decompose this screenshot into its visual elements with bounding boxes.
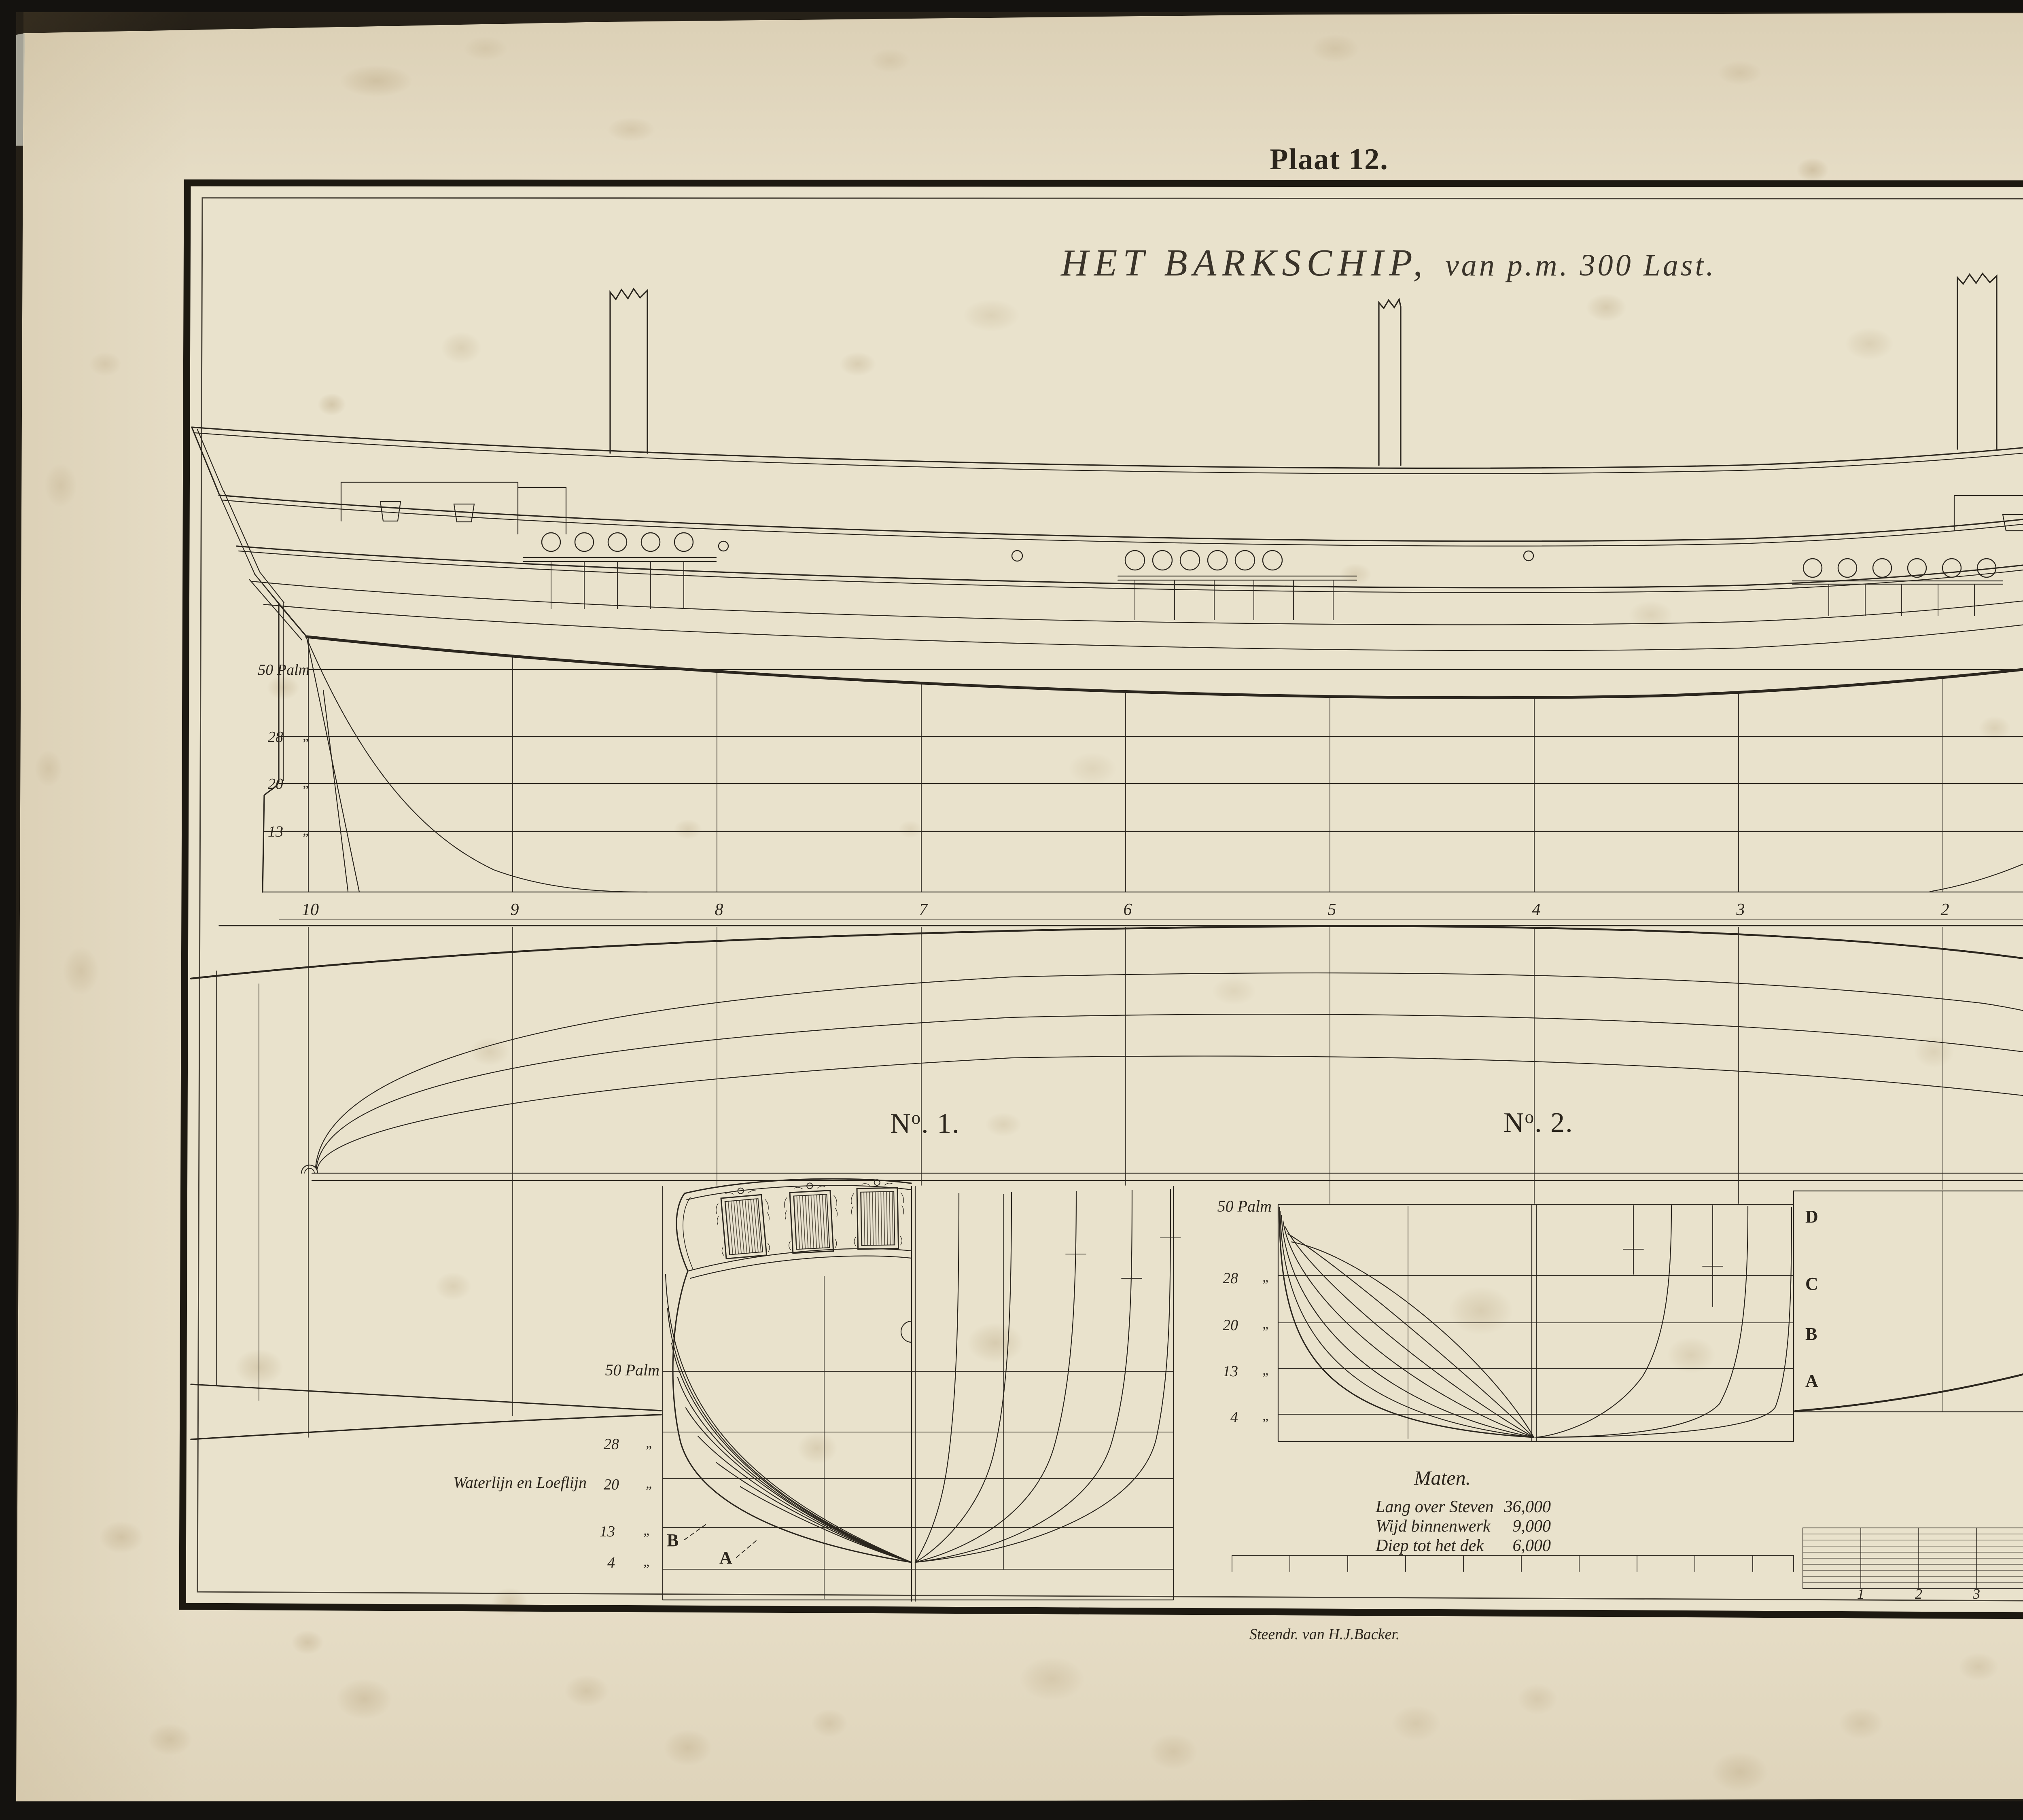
svg-text:Lang over Steven: Lang over Steven: [1375, 1498, 1494, 1516]
svg-text:„: „: [1262, 1409, 1270, 1424]
svg-text:4: 4: [1532, 900, 1541, 919]
svg-text:10: 10: [302, 900, 319, 919]
svg-text:A: A: [1805, 1371, 1818, 1391]
svg-text:van p.m. 300 Last.: van p.m. 300 Last.: [1445, 248, 1716, 282]
svg-text:28: 28: [604, 1436, 619, 1453]
svg-text:„: „: [1262, 1317, 1270, 1332]
svg-text:20: 20: [604, 1476, 619, 1493]
svg-text:50 Palm: 50 Palm: [258, 661, 310, 678]
svg-text:Steendr. van H.J.Backer.: Steendr. van H.J.Backer.: [1249, 1626, 1400, 1643]
svg-text:C: C: [1805, 1274, 1818, 1294]
svg-text:50 Palm: 50 Palm: [1217, 1197, 1272, 1215]
svg-text:No. 2.: No. 2.: [1503, 1107, 1573, 1138]
svg-text:„: „: [646, 1436, 653, 1451]
svg-text:13: 13: [268, 823, 283, 840]
svg-text:2: 2: [1915, 1586, 1922, 1602]
svg-text:D: D: [1805, 1207, 1818, 1227]
svg-text:„: „: [303, 823, 310, 838]
svg-text:Wijd binnenwerk: Wijd binnenwerk: [1376, 1517, 1491, 1536]
svg-text:A: A: [719, 1548, 732, 1568]
svg-text:„: „: [303, 775, 310, 790]
svg-text:„: „: [643, 1523, 651, 1538]
svg-text:Diep tot het dek: Diep tot het dek: [1375, 1536, 1484, 1555]
svg-text:50 Palm: 50 Palm: [605, 1361, 659, 1379]
svg-text:„: „: [646, 1476, 653, 1491]
svg-text:Waterlijn en Loeflijn: Waterlijn en Loeflijn: [453, 1473, 587, 1492]
svg-text:3: 3: [1736, 900, 1745, 919]
svg-text:28: 28: [268, 729, 283, 746]
svg-text:20: 20: [1223, 1317, 1238, 1334]
svg-text:„: „: [1262, 1270, 1270, 1285]
svg-text:5: 5: [1328, 900, 1336, 919]
svg-text:1: 1: [1857, 1586, 1864, 1602]
svg-text:36,000: 36,000: [1504, 1498, 1551, 1516]
svg-text:9,000: 9,000: [1513, 1517, 1551, 1536]
svg-text:B: B: [1805, 1324, 1817, 1344]
svg-text:28: 28: [1223, 1270, 1238, 1287]
svg-text:Maten.: Maten.: [1414, 1466, 1471, 1489]
svg-text:„: „: [303, 729, 310, 744]
svg-text:„: „: [643, 1554, 651, 1569]
svg-text:HET BARKSCHIP,: HET BARKSCHIP,: [1060, 242, 1428, 284]
svg-text:6: 6: [1124, 900, 1132, 919]
svg-text:No. 1.: No. 1.: [890, 1108, 960, 1139]
svg-text:2: 2: [1941, 900, 1949, 919]
svg-text:Plaat 12.: Plaat 12.: [1270, 143, 1388, 176]
svg-text:3: 3: [1972, 1586, 1980, 1602]
svg-text:B: B: [667, 1530, 679, 1550]
svg-text:„: „: [1262, 1363, 1270, 1378]
svg-text:20: 20: [268, 775, 283, 792]
svg-text:7: 7: [919, 900, 929, 919]
svg-text:4: 4: [607, 1554, 615, 1571]
svg-text:13: 13: [600, 1523, 615, 1540]
svg-text:6,000: 6,000: [1513, 1536, 1551, 1555]
svg-text:8: 8: [715, 900, 723, 919]
svg-text:13: 13: [1223, 1363, 1238, 1380]
svg-text:4: 4: [1230, 1409, 1238, 1426]
svg-text:9: 9: [511, 900, 519, 919]
